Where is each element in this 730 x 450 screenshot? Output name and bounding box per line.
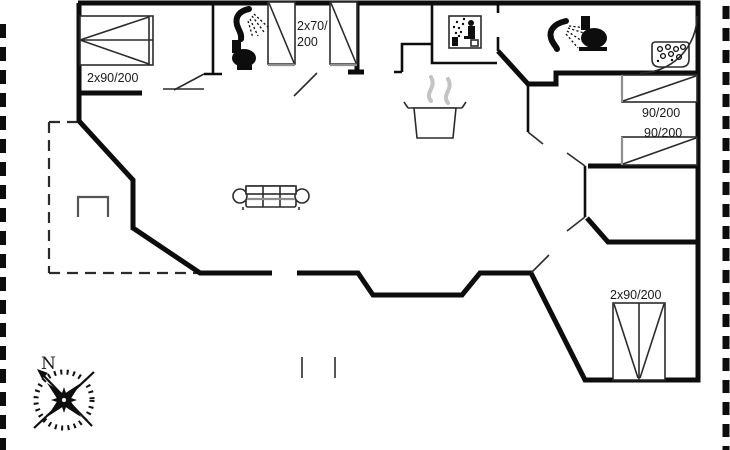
bed-size-label: 2x90/200: [610, 288, 661, 302]
cooking-pot-icon: [404, 77, 466, 138]
exterior-walls: [78, 3, 698, 380]
compass-north-label: N: [41, 354, 56, 374]
compass-rose: [34, 369, 94, 428]
single-bed-right-lower: [622, 137, 697, 165]
shower-icon: [551, 21, 586, 49]
whirlpool-icon: [652, 42, 689, 67]
bed-size-label: 90/200: [642, 106, 680, 120]
terrace-outline: [49, 122, 198, 273]
fireplace: [78, 197, 108, 217]
toilet-icon: [232, 40, 256, 70]
shower-icon: [237, 9, 269, 39]
bed-size-label: 90/200: [644, 126, 682, 140]
floor-plan-svg: 2x90/200 2x70/ 200 90/200 90/200 2x90/20…: [0, 0, 730, 450]
single-bed-right-upper: [622, 75, 697, 102]
bed-size-label: 2x70/: [297, 19, 328, 33]
bed-size-label: 2x90/200: [87, 71, 138, 85]
sofa: [233, 186, 309, 210]
bed-size-label: 200: [297, 35, 318, 49]
floor-plan: 2x90/200 2x70/ 200 90/200 90/200 2x90/20…: [0, 0, 730, 450]
terrace-step-marks: [302, 357, 335, 378]
double-bed-bottom-right: [613, 303, 665, 380]
single-bed-top-b: [330, 2, 357, 65]
single-bed-top-a: [268, 2, 295, 65]
door-swing: [163, 73, 585, 273]
double-bed-top-left: [80, 16, 153, 65]
sauna-icon: [449, 16, 481, 48]
toilet-icon: [579, 16, 607, 51]
